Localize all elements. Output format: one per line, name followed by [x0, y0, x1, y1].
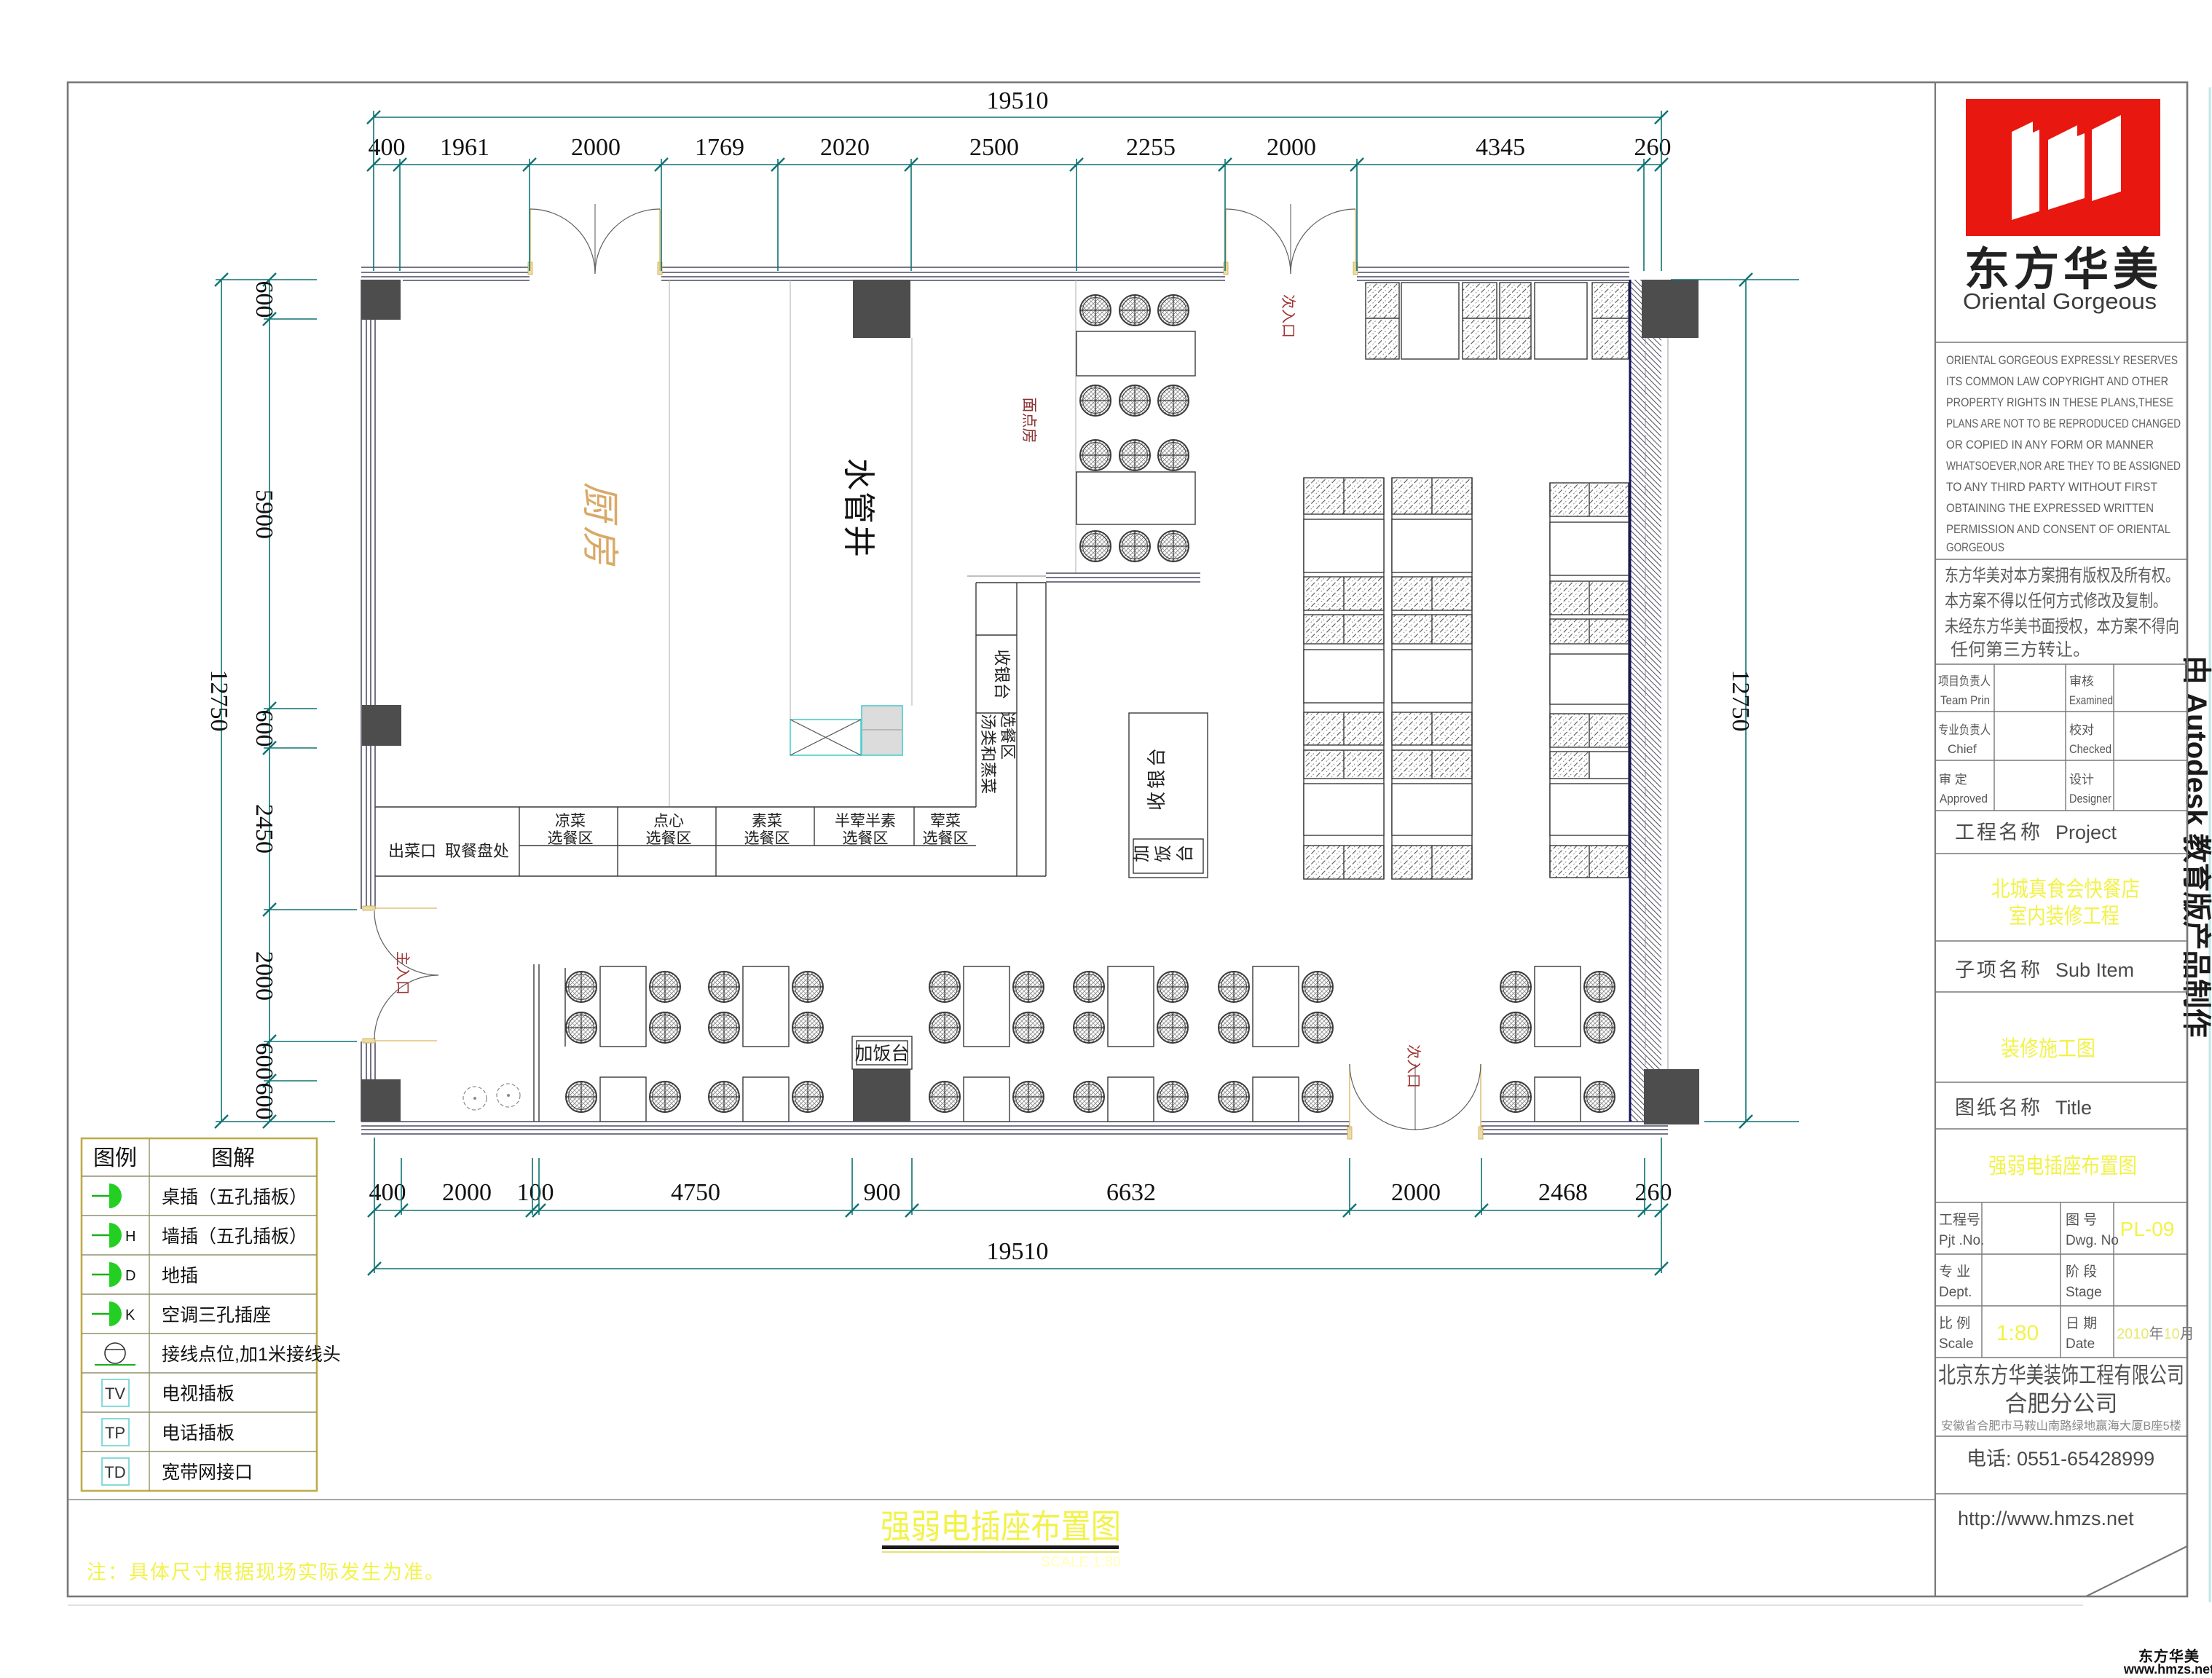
svg-text:任何第三方转让。: 任何第三方转让。: [1951, 640, 2090, 660]
svg-text:凉菜: 凉菜: [555, 813, 586, 830]
svg-text:主入口: 主入口: [394, 951, 411, 995]
svg-text:2468: 2468: [1538, 1179, 1588, 1206]
svg-text:Examined: Examined: [2069, 693, 2113, 707]
svg-text:收银台: 收银台: [993, 650, 1012, 700]
svg-text:260: 260: [1634, 134, 1672, 161]
svg-text:600: 600: [251, 281, 278, 318]
svg-text:Oriental Gorgeous: Oriental Gorgeous: [1963, 288, 2157, 314]
svg-text:1:80: 1:80: [1996, 1321, 2039, 1345]
svg-text:600: 600: [251, 1083, 278, 1120]
svg-text:工程号: 工程号: [1939, 1212, 1980, 1228]
svg-text:19510: 19510: [987, 1238, 1049, 1265]
svg-text:OR COPIED IN ANY FORM OR MANNE: OR COPIED IN ANY FORM OR MANNER: [1946, 438, 2154, 452]
svg-text:项目负责人: 项目负责人: [1938, 674, 1991, 688]
svg-text:http://www.hmzs.net: http://www.hmzs.net: [1958, 1508, 2134, 1529]
svg-text:取餐盘处: 取餐盘处: [445, 842, 509, 860]
svg-text:12750: 12750: [205, 670, 232, 732]
svg-text:2000: 2000: [1391, 1179, 1441, 1206]
svg-text:260: 260: [1635, 1179, 1672, 1206]
svg-text:2500: 2500: [969, 134, 1019, 161]
svg-text:ITS COMMON LAW COPYRIGHT AND O: ITS COMMON LAW COPYRIGHT AND OTHER: [1946, 375, 2168, 388]
svg-text:次入口: 次入口: [1280, 294, 1296, 338]
svg-text:汤类和蒸菜: 汤类和蒸菜: [979, 714, 997, 794]
svg-text:设计: 设计: [2069, 773, 2094, 787]
svg-text:4345: 4345: [1476, 134, 1525, 161]
svg-text:注：具体尺寸根据现场实际发生为准。: 注：具体尺寸根据现场实际发生为准。: [87, 1561, 446, 1583]
svg-text:工程名称: 工程名称: [1955, 822, 2042, 843]
svg-text:子项名称: 子项名称: [1955, 959, 2042, 981]
svg-text:1961: 1961: [440, 134, 489, 161]
svg-text:饭: 饭: [1154, 845, 1173, 862]
svg-text:本方案不得以任何方式修改及复制。: 本方案不得以任何方式修改及复制。: [1945, 591, 2167, 611]
svg-text:PROPERTY RIGHTS IN THESE PLANS: PROPERTY RIGHTS IN THESE PLANS,THESE: [1946, 396, 2173, 409]
svg-text:阶 段: 阶 段: [2066, 1264, 2097, 1280]
svg-text:加: 加: [1132, 845, 1152, 862]
svg-text:PLANS ARE NOT TO BE REPRODUCED: PLANS ARE NOT TO BE REPRODUCED CHANGED: [1946, 417, 2181, 430]
svg-text:墙插（五孔插板）: 墙插（五孔插板）: [162, 1226, 307, 1247]
svg-text:Date: Date: [2066, 1336, 2095, 1352]
svg-text:2255: 2255: [1126, 134, 1176, 161]
svg-text:面点房: 面点房: [1020, 398, 1037, 444]
svg-text:比 例: 比 例: [1939, 1315, 1970, 1331]
svg-text:半荤半素: 半荤半素: [835, 813, 896, 830]
svg-text:图解: 图解: [211, 1146, 255, 1170]
svg-text:审核: 审核: [2069, 674, 2094, 688]
svg-text:荤菜: 荤菜: [930, 813, 961, 830]
svg-text:厨房: 厨房: [578, 482, 621, 570]
svg-text:Pjt .No.: Pjt .No.: [1939, 1233, 1984, 1248]
svg-text:GORGEOUS: GORGEOUS: [1946, 541, 2004, 554]
svg-text:SCALE 1:80: SCALE 1:80: [1041, 1554, 1121, 1570]
svg-text:电话插板: 电话插板: [162, 1423, 235, 1443]
svg-text:Chief: Chief: [1948, 742, 1977, 756]
svg-text:12750: 12750: [1727, 670, 1754, 732]
svg-text:WHATSOEVER,NOR ARE THEY TO BE: WHATSOEVER,NOR ARE THEY TO BE ASSIGNED: [1946, 460, 2181, 473]
svg-text:Scale: Scale: [1939, 1336, 1974, 1352]
svg-text:电话: 0551-65428999: 电话: 0551-65428999: [1967, 1448, 2154, 1470]
svg-text:校对: 校对: [2069, 723, 2094, 737]
svg-text:Checked: Checked: [2069, 742, 2111, 756]
svg-text:Title: Title: [2055, 1097, 2092, 1119]
svg-text:电视插板: 电视插板: [162, 1384, 235, 1404]
svg-text:TO ANY THIRD PARTY WITHOUT FIR: TO ANY THIRD PARTY WITHOUT FIRST: [1946, 481, 2157, 494]
svg-text:专业负责人: 专业负责人: [1938, 723, 1991, 737]
svg-text:2000: 2000: [571, 134, 621, 161]
svg-text:地插: 地插: [162, 1266, 198, 1286]
svg-text:Approved: Approved: [1940, 792, 1988, 805]
svg-text:2450: 2450: [251, 804, 278, 854]
svg-text:次入口: 次入口: [1405, 1044, 1422, 1088]
svg-text:2020: 2020: [820, 134, 870, 161]
svg-text:Project: Project: [2055, 822, 2117, 843]
svg-text:6632: 6632: [1106, 1179, 1156, 1206]
svg-text:安徽省合肥市马鞍山南路绿地赢海大厦B座5楼: 安徽省合肥市马鞍山南路绿地赢海大厦B座5楼: [1941, 1419, 2181, 1433]
svg-text:100: 100: [517, 1179, 554, 1206]
svg-text:图 号: 图 号: [2066, 1213, 2097, 1228]
svg-text:选餐区: 选餐区: [744, 830, 790, 847]
svg-text:接线点位,加1米接线头: 接线点位,加1米接线头: [162, 1344, 341, 1365]
svg-text:4750: 4750: [671, 1179, 720, 1206]
svg-text:审 定: 审 定: [1939, 773, 1967, 787]
svg-text:素菜: 素菜: [752, 813, 782, 830]
svg-text:桌插（五孔插板）: 桌插（五孔插板）: [162, 1187, 307, 1208]
svg-text:点心: 点心: [653, 813, 684, 830]
svg-text:600: 600: [251, 1043, 278, 1080]
svg-text:东方华美: 东方华美: [1964, 245, 2162, 295]
svg-text:5900: 5900: [251, 489, 278, 539]
svg-text:www.hmzs.net: www.hmzs.net: [2123, 1662, 2212, 1677]
svg-text:OBTAINING THE EXPRESSED WRITTE: OBTAINING THE EXPRESSED WRITTEN: [1946, 502, 2154, 515]
svg-text:TV: TV: [105, 1384, 125, 1403]
svg-text:ORIENTAL GORGEOUS EXPRESSLY RE: ORIENTAL GORGEOUS EXPRESSLY RESERVES: [1946, 354, 2178, 367]
svg-text:加饭台: 加饭台: [854, 1044, 909, 1064]
svg-text:PERMISSION AND CONSENT OF ORIE: PERMISSION AND CONSENT OF ORIENTAL: [1946, 523, 2170, 536]
svg-text:TD: TD: [104, 1463, 125, 1481]
svg-text:2010年10月: 2010年10月: [2117, 1326, 2195, 1342]
svg-text:日 期: 日 期: [2066, 1315, 2097, 1331]
svg-text:选餐区: 选餐区: [843, 830, 889, 847]
svg-text:2000: 2000: [1267, 134, 1316, 161]
svg-text:出菜口: 出菜口: [388, 842, 436, 860]
svg-text:选餐区: 选餐区: [646, 830, 692, 847]
svg-text:图例: 图例: [93, 1146, 137, 1170]
svg-text:室内装修工程: 室内装修工程: [2009, 905, 2119, 929]
svg-text:北京东方华美装饰工程有限公司: 北京东方华美装饰工程有限公司: [1938, 1363, 2184, 1388]
svg-text:水管井: 水管井: [841, 458, 876, 559]
svg-text:1769: 1769: [695, 134, 744, 161]
svg-text:由 Autodesk 教育版产品制作: 由 Autodesk 教育版产品制作: [2180, 655, 2212, 1037]
svg-text:选餐区: 选餐区: [999, 712, 1017, 760]
svg-text:选餐区: 选餐区: [923, 830, 969, 847]
svg-text:合肥分公司: 合肥分公司: [2005, 1391, 2118, 1417]
svg-text:Dwg. No: Dwg. No: [2066, 1233, 2119, 1248]
svg-text:强弱电插座布置图: 强弱电插座布置图: [1988, 1154, 2137, 1178]
svg-text:强弱电插座布置图: 强弱电插座布置图: [881, 1508, 1121, 1545]
svg-text:PL-09: PL-09: [2120, 1218, 2175, 1240]
svg-text:选餐区: 选餐区: [548, 830, 594, 847]
svg-text:2000: 2000: [442, 1179, 492, 1206]
svg-text:Stage: Stage: [2066, 1285, 2102, 1300]
svg-text:Team Prin: Team Prin: [1940, 693, 1990, 707]
svg-text:19510: 19510: [987, 87, 1049, 114]
svg-text:Sub Item: Sub Item: [2055, 959, 2134, 981]
svg-text:K: K: [125, 1307, 135, 1323]
svg-text:空调三孔插座: 空调三孔插座: [162, 1305, 271, 1326]
svg-text:北城真食会快餐店: 北城真食会快餐店: [1991, 878, 2140, 902]
svg-text:收银台: 收银台: [1146, 745, 1168, 811]
svg-text:未经东方华美书面授权，本方案不得向: 未经东方华美书面授权，本方案不得向: [1945, 617, 2179, 637]
svg-text:图纸名称: 图纸名称: [1955, 1097, 2042, 1119]
svg-text:H: H: [125, 1229, 135, 1245]
svg-text:专 业: 专 业: [1939, 1264, 1970, 1280]
svg-text:台: 台: [1176, 845, 1195, 862]
svg-text:TP: TP: [105, 1424, 125, 1442]
svg-text:宽带网接口: 宽带网接口: [162, 1462, 253, 1483]
svg-text:D: D: [125, 1268, 135, 1284]
svg-text:Designer: Designer: [2069, 792, 2111, 805]
svg-text:600: 600: [251, 710, 278, 747]
svg-text:900: 900: [864, 1179, 901, 1206]
svg-text:Dept.: Dept.: [1939, 1285, 1972, 1300]
svg-text:2000: 2000: [251, 951, 278, 1001]
svg-text:东方华美对本方案拥有版权及所有权。: 东方华美对本方案拥有版权及所有权。: [1945, 566, 2179, 586]
svg-text:装修施工图: 装修施工图: [2001, 1037, 2095, 1061]
